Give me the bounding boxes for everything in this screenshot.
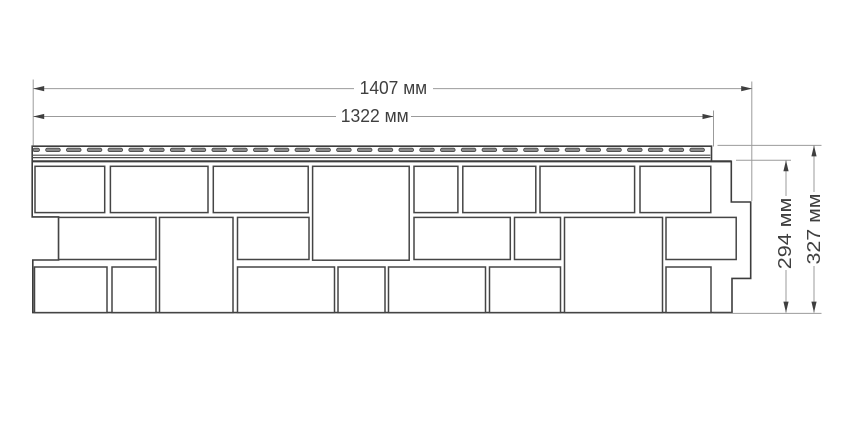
svg-text:294 мм: 294 мм bbox=[774, 198, 795, 270]
svg-text:1322 мм: 1322 мм bbox=[341, 105, 409, 126]
svg-text:327 мм: 327 мм bbox=[803, 194, 824, 265]
svg-text:1407 мм: 1407 мм bbox=[360, 77, 428, 98]
